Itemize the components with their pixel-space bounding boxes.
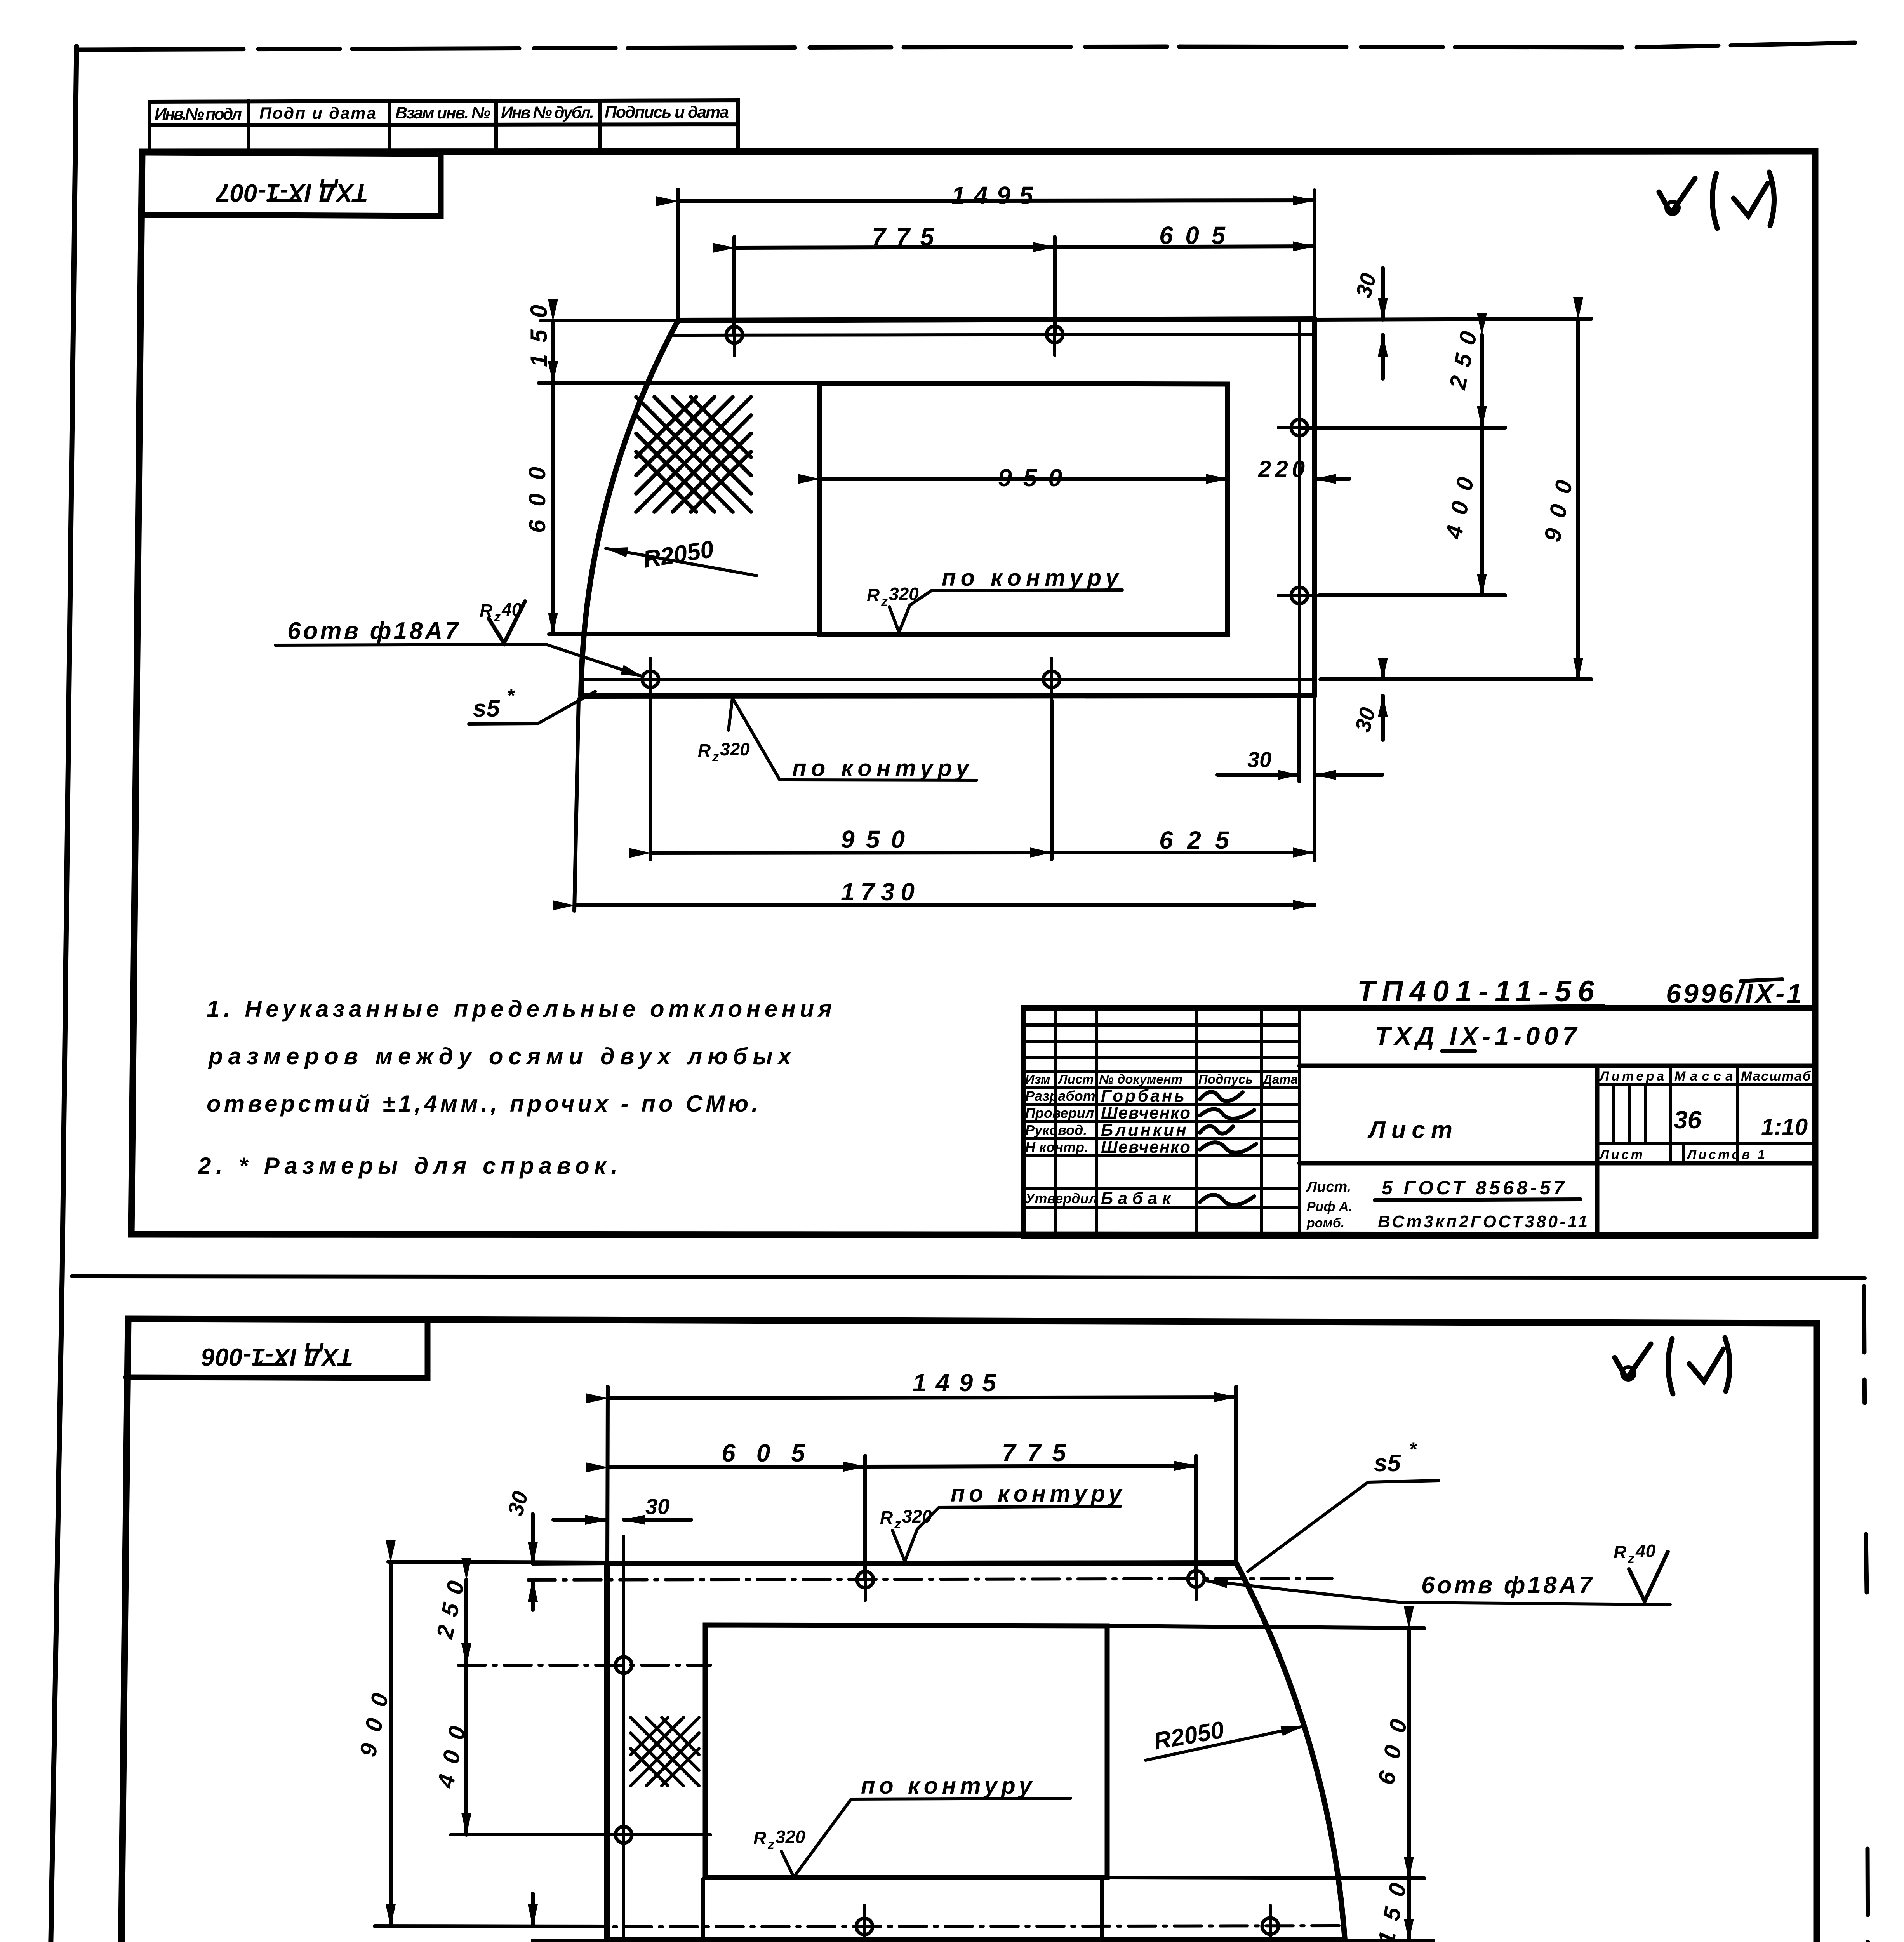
svg-text:Бабак: Бабак (1101, 1189, 1172, 1208)
svg-text:по контуру: по контуру (951, 1481, 1123, 1507)
svg-text:5 ГОСТ 8568-57: 5 ГОСТ 8568-57 (1382, 1177, 1565, 1199)
svg-text:625: 625 (1159, 826, 1229, 854)
svg-text:z: z (494, 610, 501, 625)
svg-text:z: z (767, 1837, 774, 1852)
svg-text:Масса: Масса (1674, 1069, 1733, 1084)
svg-text:Подпусь: Подпусь (1198, 1072, 1253, 1086)
svg-text:775: 775 (1002, 1439, 1066, 1467)
svg-text:30: 30 (503, 1489, 533, 1518)
svg-text:z: z (1628, 1551, 1634, 1566)
svg-text:40: 40 (1635, 1541, 1656, 1561)
svg-text:Литера: Литера (1599, 1069, 1664, 1084)
svg-text:6отв ф18А7: 6отв ф18А7 (287, 618, 459, 644)
svg-text:Подпись и дата: Подпись и дата (605, 103, 729, 122)
svg-text:z: z (712, 750, 719, 764)
svg-text:Руковод.: Руковод. (1025, 1122, 1087, 1138)
svg-text:Блинкин: Блинкин (1101, 1121, 1186, 1140)
svg-text:z: z (881, 594, 888, 609)
svg-text:s5: s5 (473, 695, 500, 722)
svg-text:1495: 1495 (951, 181, 1033, 209)
svg-text:Изм: Изм (1025, 1072, 1050, 1086)
svg-text:36: 36 (1674, 1106, 1702, 1134)
svg-text:30: 30 (1247, 747, 1271, 772)
svg-text:ромб.: ромб. (1306, 1216, 1344, 1230)
svg-text:отверстий ±1,4мм., прочих - по: отверстий ±1,4мм., прочих - по СМю. (207, 1091, 758, 1117)
svg-text:№ документ: № документ (1099, 1072, 1182, 1086)
svg-text:ТХД ІХ-1-006: ТХД ІХ-1-006 (202, 1343, 354, 1371)
svg-text:1730: 1730 (841, 878, 915, 906)
svg-text:Дата: Дата (1262, 1072, 1298, 1086)
svg-text:s5: s5 (1374, 1450, 1401, 1477)
svg-text:Лист: Лист (1058, 1072, 1094, 1086)
svg-text:Взам инв. №: Взам инв. № (395, 104, 490, 122)
svg-text:30: 30 (645, 1494, 669, 1519)
svg-text:Листов 1: Листов 1 (1686, 1147, 1765, 1162)
svg-text:R: R (1614, 1542, 1626, 1562)
svg-text:по контуру: по контуру (942, 565, 1120, 591)
svg-text:R2050: R2050 (1151, 1716, 1226, 1755)
svg-text:Инв № дубл.: Инв № дубл. (501, 103, 594, 122)
svg-text:Подп и дата: Подп и дата (259, 104, 376, 123)
svg-text:900: 900 (1539, 478, 1577, 544)
svg-text:605: 605 (722, 1439, 805, 1467)
svg-text:950: 950 (998, 464, 1062, 492)
svg-text:по контуру: по контуру (792, 755, 970, 781)
svg-text:ВСт3кп2ГОСТ380-11: ВСт3кп2ГОСТ380-11 (1378, 1212, 1588, 1231)
svg-text:30: 30 (1351, 271, 1381, 300)
svg-text:Масштаб: Масштаб (1741, 1069, 1811, 1084)
svg-text:Н контр.: Н контр. (1025, 1139, 1088, 1155)
svg-text:ТП401-11-56: ТП401-11-56 (1357, 975, 1594, 1008)
svg-text:1495: 1495 (913, 1369, 996, 1397)
svg-text:Разработ.: Разработ. (1025, 1088, 1099, 1104)
svg-text:Лист: Лист (1367, 1117, 1452, 1143)
svg-text:1. Неуказанные предельные от: 1. Неуказанные предельные отклонения (207, 996, 832, 1022)
svg-text:Утвердил: Утвердил (1025, 1190, 1097, 1206)
svg-text:R: R (480, 600, 492, 621)
svg-text:Шевченко: Шевченко (1101, 1138, 1190, 1157)
svg-text:775: 775 (872, 223, 934, 251)
svg-text:220: 220 (1258, 456, 1305, 482)
svg-text:ТХД ІХ-1-007: ТХД ІХ-1-007 (1375, 1021, 1578, 1050)
svg-text:6996/ІХ-1: 6996/ІХ-1 (1666, 978, 1802, 1009)
svg-text:z: z (894, 1517, 901, 1531)
svg-text:6отв ф18А7: 6отв ф18А7 (1421, 1572, 1593, 1599)
svg-text:1:10: 1:10 (1761, 1114, 1808, 1140)
svg-text:Инв.№ подл: Инв.№ подл (155, 105, 242, 124)
svg-text:320: 320 (776, 1827, 805, 1847)
svg-text:320: 320 (902, 1506, 932, 1526)
svg-text:Риф А.: Риф А. (1307, 1199, 1352, 1214)
svg-text:250: 250 (1444, 329, 1482, 392)
svg-text:*: * (507, 685, 515, 706)
svg-text:605: 605 (1159, 221, 1226, 249)
svg-text:*: * (1409, 1438, 1417, 1460)
svg-text:30: 30 (1350, 705, 1380, 734)
svg-text:600: 600 (524, 467, 550, 533)
svg-text:150: 150 (1373, 1881, 1411, 1942)
svg-text:950: 950 (841, 825, 905, 853)
svg-text:250: 250 (431, 1578, 469, 1641)
svg-text:R: R (753, 1828, 766, 1848)
svg-text:Шевченко: Шевченко (1101, 1103, 1190, 1122)
svg-text:R: R (880, 1507, 893, 1528)
svg-text:Проверил: Проверил (1025, 1105, 1094, 1121)
svg-text:R: R (867, 585, 880, 605)
svg-text:размеров между осями двух: размеров между осями двух любых (208, 1043, 792, 1069)
svg-text:150: 150 (526, 305, 552, 367)
svg-text:320: 320 (720, 739, 750, 759)
svg-text:900: 900 (355, 1691, 393, 1759)
svg-text:Лист: Лист (1599, 1147, 1643, 1162)
svg-text:Лист.: Лист. (1306, 1179, 1351, 1195)
svg-text:Горбань: Горбань (1101, 1086, 1184, 1105)
svg-text:400: 400 (1440, 475, 1479, 541)
svg-text:R: R (698, 740, 711, 760)
svg-text:2. * Размеры для справок.: 2. * Размеры для справок. (198, 1153, 617, 1179)
svg-text:ТХД ІХ-1-007: ТХД ІХ-1-007 (215, 179, 369, 207)
svg-text:по контуру: по контуру (861, 1773, 1033, 1799)
svg-text:600: 600 (1373, 1717, 1412, 1787)
